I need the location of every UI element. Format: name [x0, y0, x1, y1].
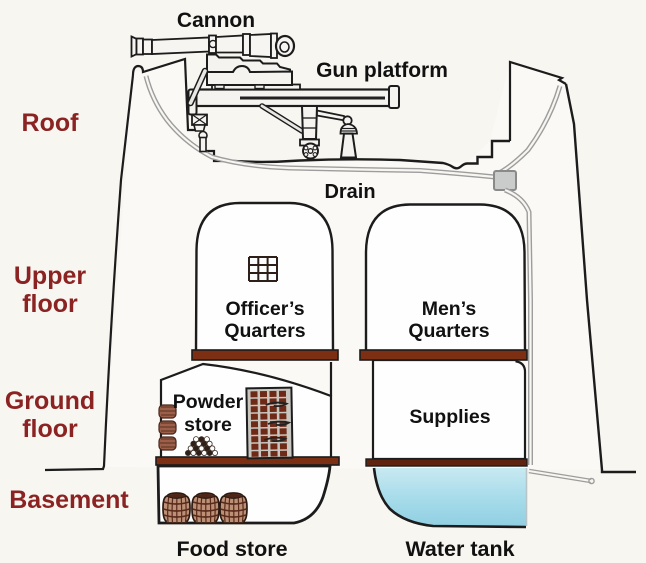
svg-text:Drain: Drain [324, 181, 375, 203]
svg-text:Basement: Basement [9, 486, 129, 514]
svg-text:Roof: Roof [22, 109, 80, 137]
svg-text:Upper: Upper [14, 262, 87, 290]
svg-text:Men’s: Men’s [422, 298, 477, 320]
svg-text:Quarters: Quarters [224, 320, 305, 342]
svg-text:store: store [184, 414, 232, 436]
svg-text:Food store: Food store [176, 537, 287, 561]
svg-text:Officer’s: Officer’s [225, 298, 304, 320]
svg-text:Cannon: Cannon [177, 9, 255, 32]
svg-text:Supplies: Supplies [409, 406, 490, 428]
svg-text:Powder: Powder [173, 391, 244, 413]
svg-text:Ground: Ground [5, 387, 95, 415]
svg-text:Gun platform: Gun platform [316, 59, 448, 82]
svg-text:floor: floor [22, 415, 78, 443]
svg-text:Quarters: Quarters [408, 320, 489, 342]
svg-text:Water tank: Water tank [405, 537, 514, 561]
svg-text:floor: floor [22, 290, 78, 318]
